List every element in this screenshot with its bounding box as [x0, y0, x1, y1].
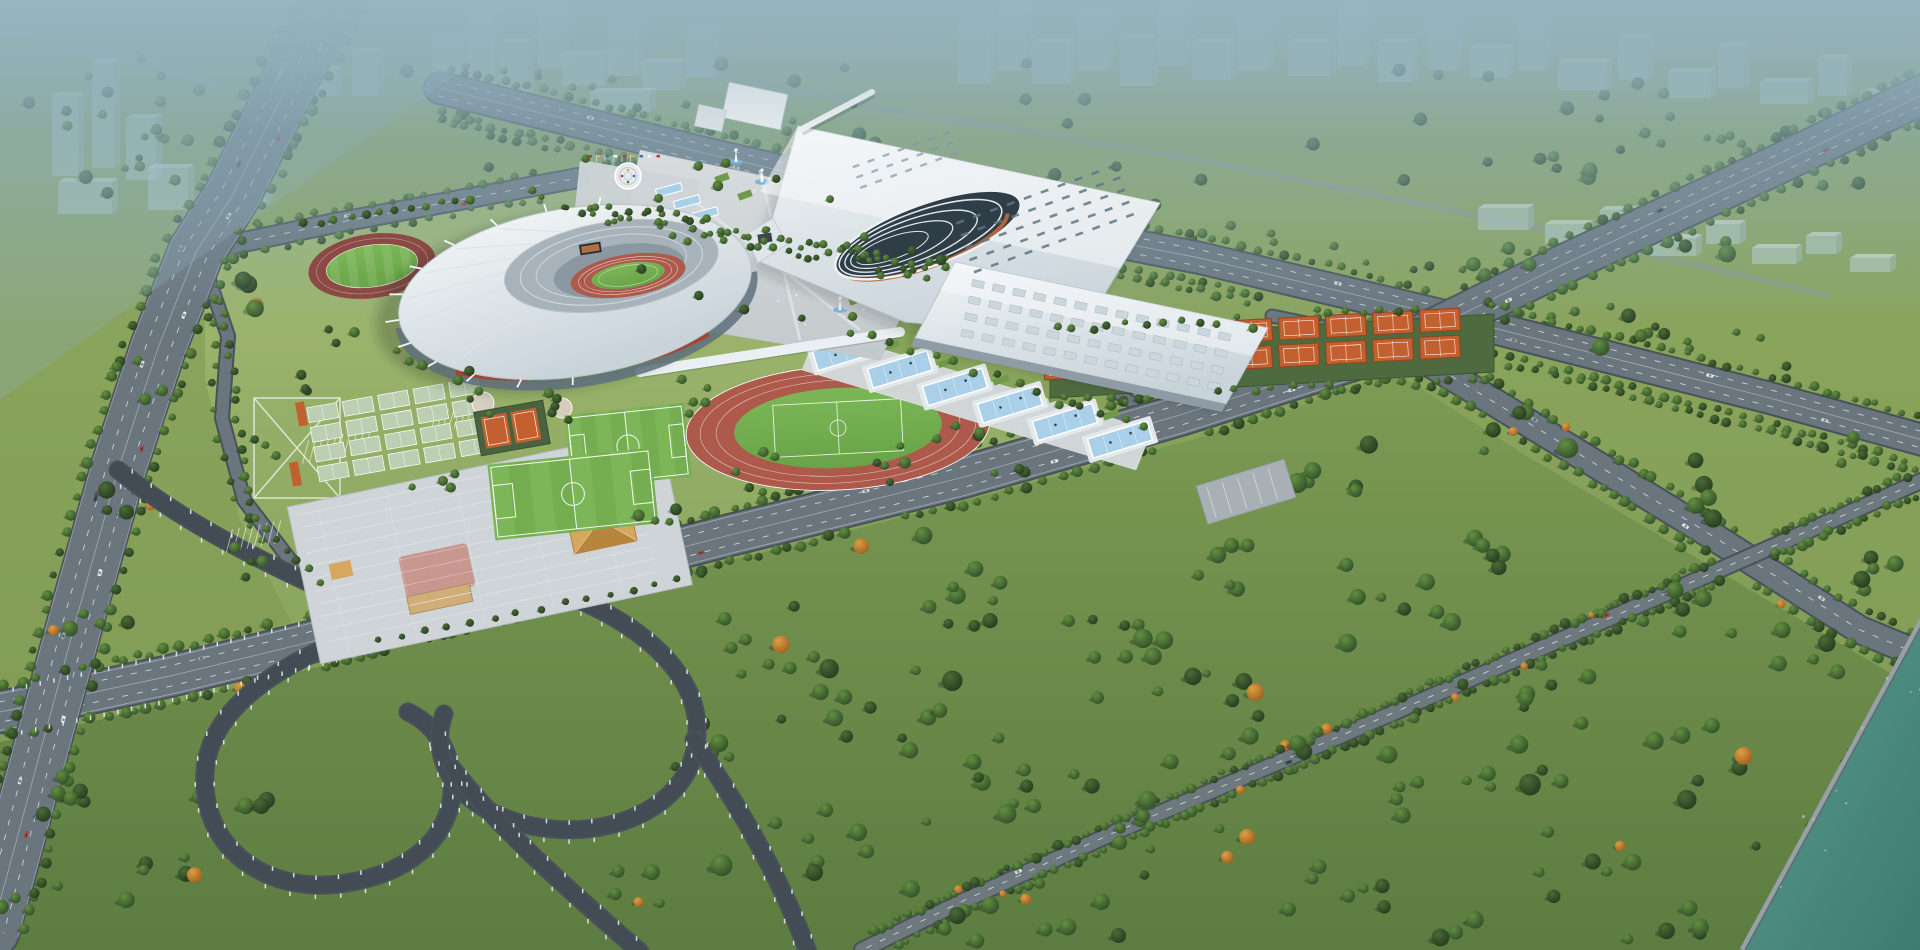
aer-scene	[0, 0, 1920, 950]
flag	[606, 155, 609, 157]
flag	[648, 155, 651, 157]
tennis-court	[1419, 335, 1460, 359]
flag	[614, 155, 617, 157]
tennis-court	[1278, 316, 1319, 340]
flag	[657, 155, 660, 157]
tennis-court	[1419, 308, 1460, 332]
flag	[597, 155, 600, 157]
tennis-court	[1372, 338, 1413, 362]
sky-haze	[0, 0, 1920, 130]
tennis-court	[1325, 313, 1366, 337]
tennis-court	[1278, 343, 1319, 367]
tennis-court	[1325, 340, 1366, 364]
rendering-stage	[0, 0, 1920, 950]
flag	[631, 155, 634, 157]
emblem-circle	[615, 163, 641, 189]
flag	[640, 155, 643, 157]
flag	[623, 155, 626, 157]
tennis-court	[1372, 311, 1413, 335]
